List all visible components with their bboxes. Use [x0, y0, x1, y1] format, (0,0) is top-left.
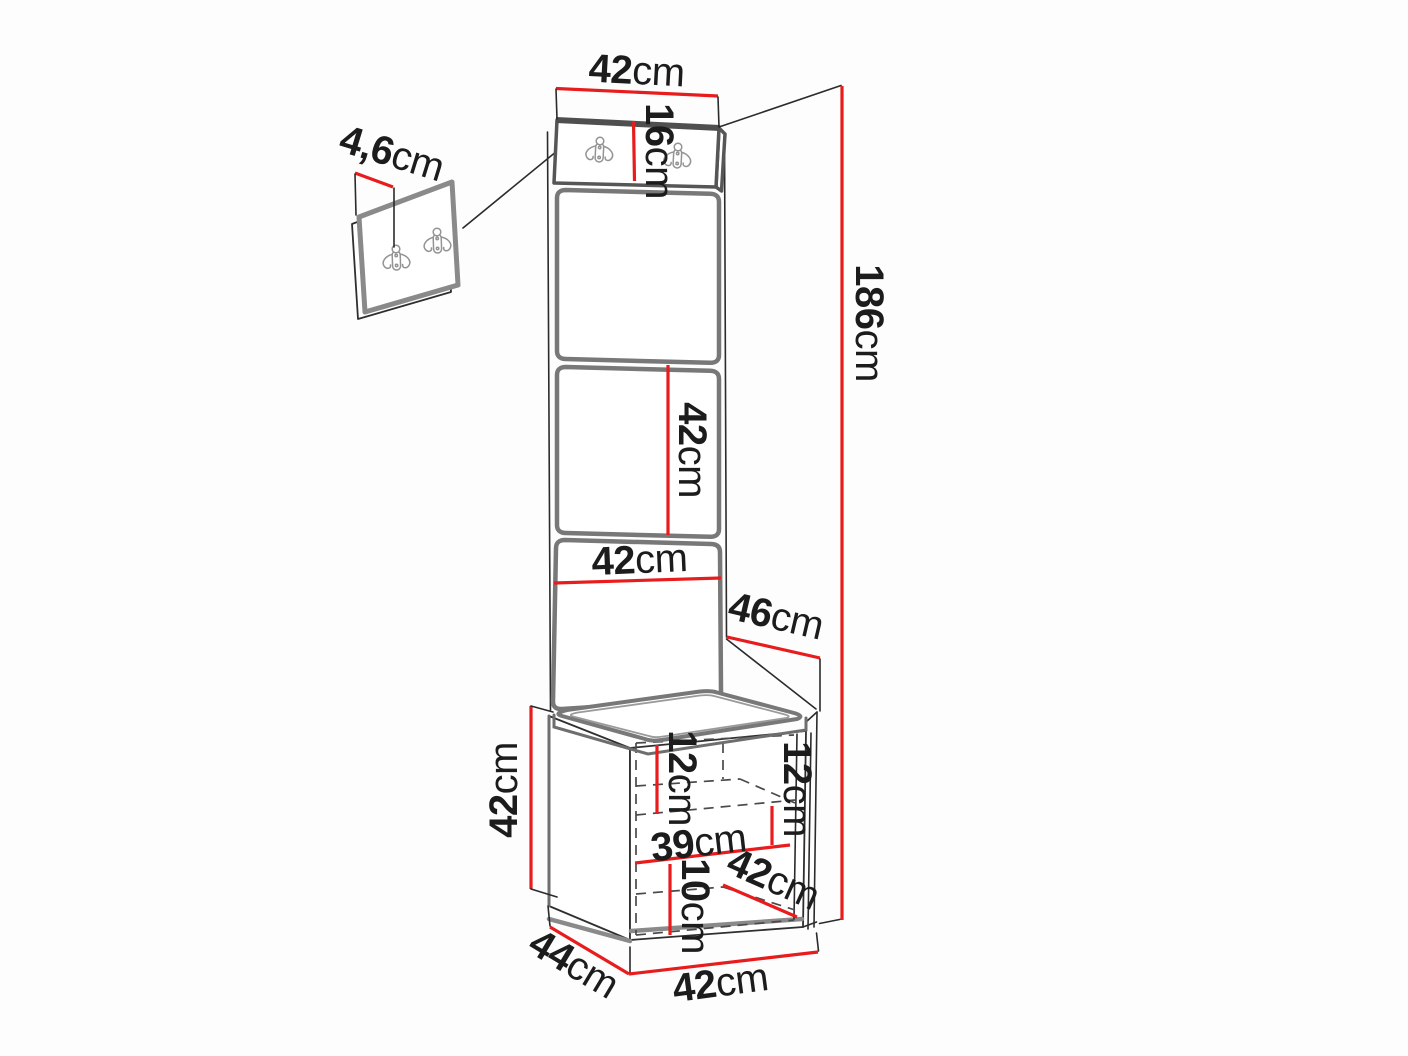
dim-total-height-label: 186cm: [847, 264, 891, 382]
dim-shelf-bottom: 10cm: [670, 858, 717, 954]
callout-line: [463, 142, 568, 228]
dim-top-width-label: 42cm: [588, 47, 686, 96]
dim-shelf-bottom-label: 10cm: [673, 858, 717, 954]
dim-bench-height: 42cm: [482, 706, 557, 897]
furniture-dimension-diagram: 42cm 16cm 4,6cm 186cm 42cm 42cm: [0, 0, 1408, 1056]
panel-back-edge-left: [548, 132, 551, 710]
dim-wall-panel-label: 4,6cm: [334, 117, 449, 190]
panel-back-edge-right: [725, 136, 727, 637]
dim-panel-width-label: 42cm: [591, 536, 689, 584]
dim-shelf-top-left-label: 12cm: [660, 730, 704, 826]
dim-base-width: 42cm: [629, 933, 819, 1011]
dim-seat-depth: 46cm: [724, 584, 827, 711]
dim-segment-height-label: 42cm: [670, 402, 714, 498]
head-hook-panel: [554, 120, 719, 187]
dim-base-width-label: 42cm: [670, 955, 771, 1011]
upholstered-segment-top: [557, 190, 719, 363]
dim-shelf-top-right-label: 12cm: [775, 741, 819, 837]
dim-bench-height-label: 42cm: [482, 742, 526, 838]
bench-left-face: [549, 716, 630, 940]
dim-header-height-label: 16cm: [637, 103, 681, 199]
dim-shelf-top-left: 12cm: [657, 730, 704, 826]
diagram-canvas: 42cm 16cm 4,6cm 186cm 42cm 42cm: [0, 0, 1408, 1056]
bench-right-top-edge: [806, 712, 817, 722]
dim-shelf-top-right: 12cm: [772, 741, 819, 845]
dim-header-height: 16cm: [634, 103, 682, 199]
